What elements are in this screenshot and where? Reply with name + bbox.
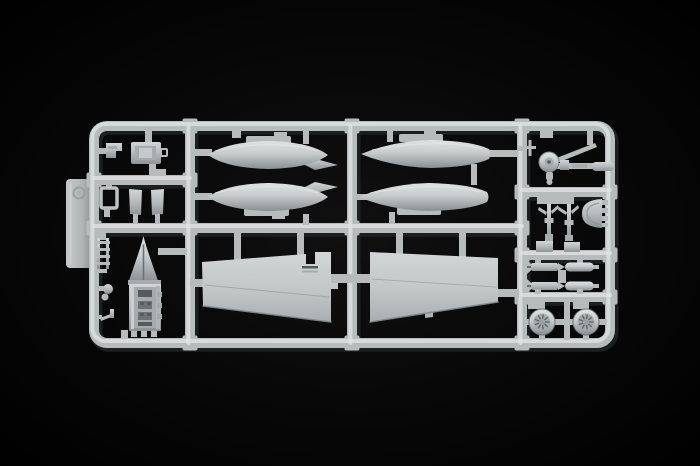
sprue-photo-svg	[0, 0, 700, 466]
model-kit-sprue-photo	[0, 0, 700, 466]
photo-canvas	[0, 0, 700, 466]
sprue-gate-stub	[232, 131, 241, 138]
wing-root-connector	[331, 274, 371, 283]
